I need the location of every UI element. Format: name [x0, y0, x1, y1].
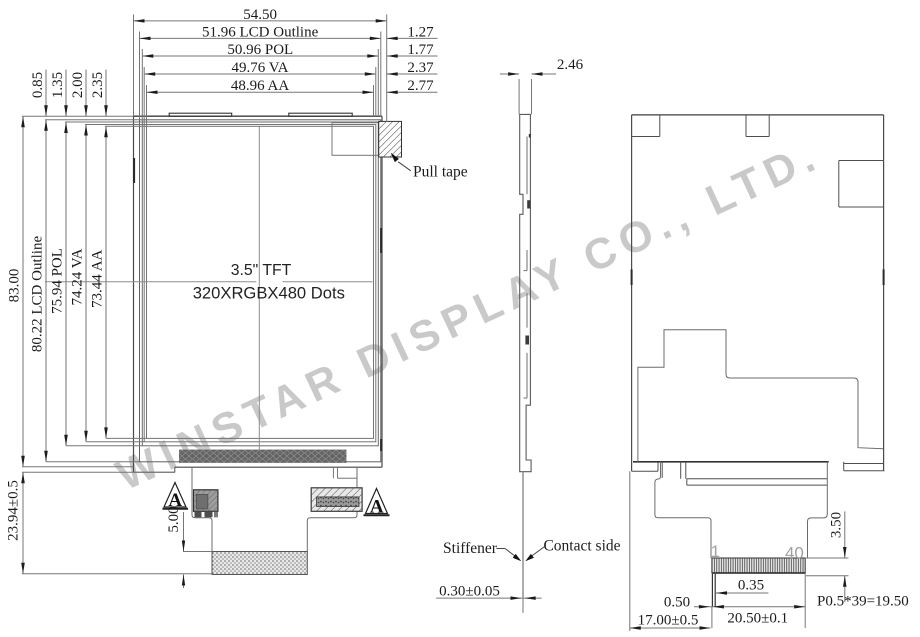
svg-text:5.00: 5.00 — [166, 506, 182, 532]
svg-text:49.76 VA: 49.76 VA — [232, 60, 289, 76]
svg-text:80.22 LCD Outline: 80.22 LCD Outline — [30, 236, 46, 353]
svg-text:2.37: 2.37 — [407, 60, 434, 76]
svg-text:2.77: 2.77 — [407, 78, 434, 94]
svg-text:0.30±0.05: 0.30±0.05 — [439, 584, 500, 600]
svg-text:2.46: 2.46 — [557, 57, 584, 73]
svg-text:0.50: 0.50 — [664, 595, 690, 611]
svg-text:0.85: 0.85 — [30, 72, 46, 98]
svg-text:320XRGBX480 Dots: 320XRGBX480 Dots — [193, 283, 345, 302]
svg-text:50.96 POL: 50.96 POL — [227, 42, 293, 58]
svg-text:1: 1 — [711, 542, 720, 561]
svg-text:WINSTAR DISPLAY CO., LTD.: WINSTAR DISPLAY CO., LTD. — [109, 131, 828, 500]
svg-text:Stiffener: Stiffener — [443, 540, 498, 557]
svg-text:0.35: 0.35 — [738, 578, 764, 594]
svg-text:P0.5*39=19.50: P0.5*39=19.50 — [817, 594, 909, 610]
svg-text:74.24 VA: 74.24 VA — [70, 248, 86, 305]
svg-text:2.35: 2.35 — [90, 72, 106, 98]
svg-text:75.94 POL: 75.94 POL — [50, 248, 66, 314]
svg-text:1.35: 1.35 — [50, 72, 66, 98]
svg-text:Pull tape: Pull tape — [413, 164, 468, 181]
svg-text:1.27: 1.27 — [407, 24, 434, 40]
svg-text:54.50: 54.50 — [243, 7, 277, 23]
svg-text:1.77: 1.77 — [407, 42, 434, 58]
svg-text:73.44 AA: 73.44 AA — [90, 249, 106, 308]
svg-text:3.50: 3.50 — [829, 512, 845, 538]
svg-text:40: 40 — [785, 544, 804, 563]
svg-text:A: A — [370, 496, 384, 517]
svg-text:48.96 AA: 48.96 AA — [231, 78, 290, 94]
svg-text:83.00: 83.00 — [7, 269, 23, 303]
svg-text:Contact side: Contact side — [543, 537, 620, 554]
svg-text:3.5" TFT: 3.5" TFT — [231, 262, 292, 279]
svg-text:23.94±0.5: 23.94±0.5 — [6, 480, 22, 541]
svg-text:51.96 LCD Outline: 51.96 LCD Outline — [202, 24, 319, 40]
svg-text:17.00±0.5: 17.00±0.5 — [638, 612, 699, 628]
svg-text:20.50±0.1: 20.50±0.1 — [727, 610, 788, 626]
svg-text:2.00: 2.00 — [70, 72, 86, 98]
